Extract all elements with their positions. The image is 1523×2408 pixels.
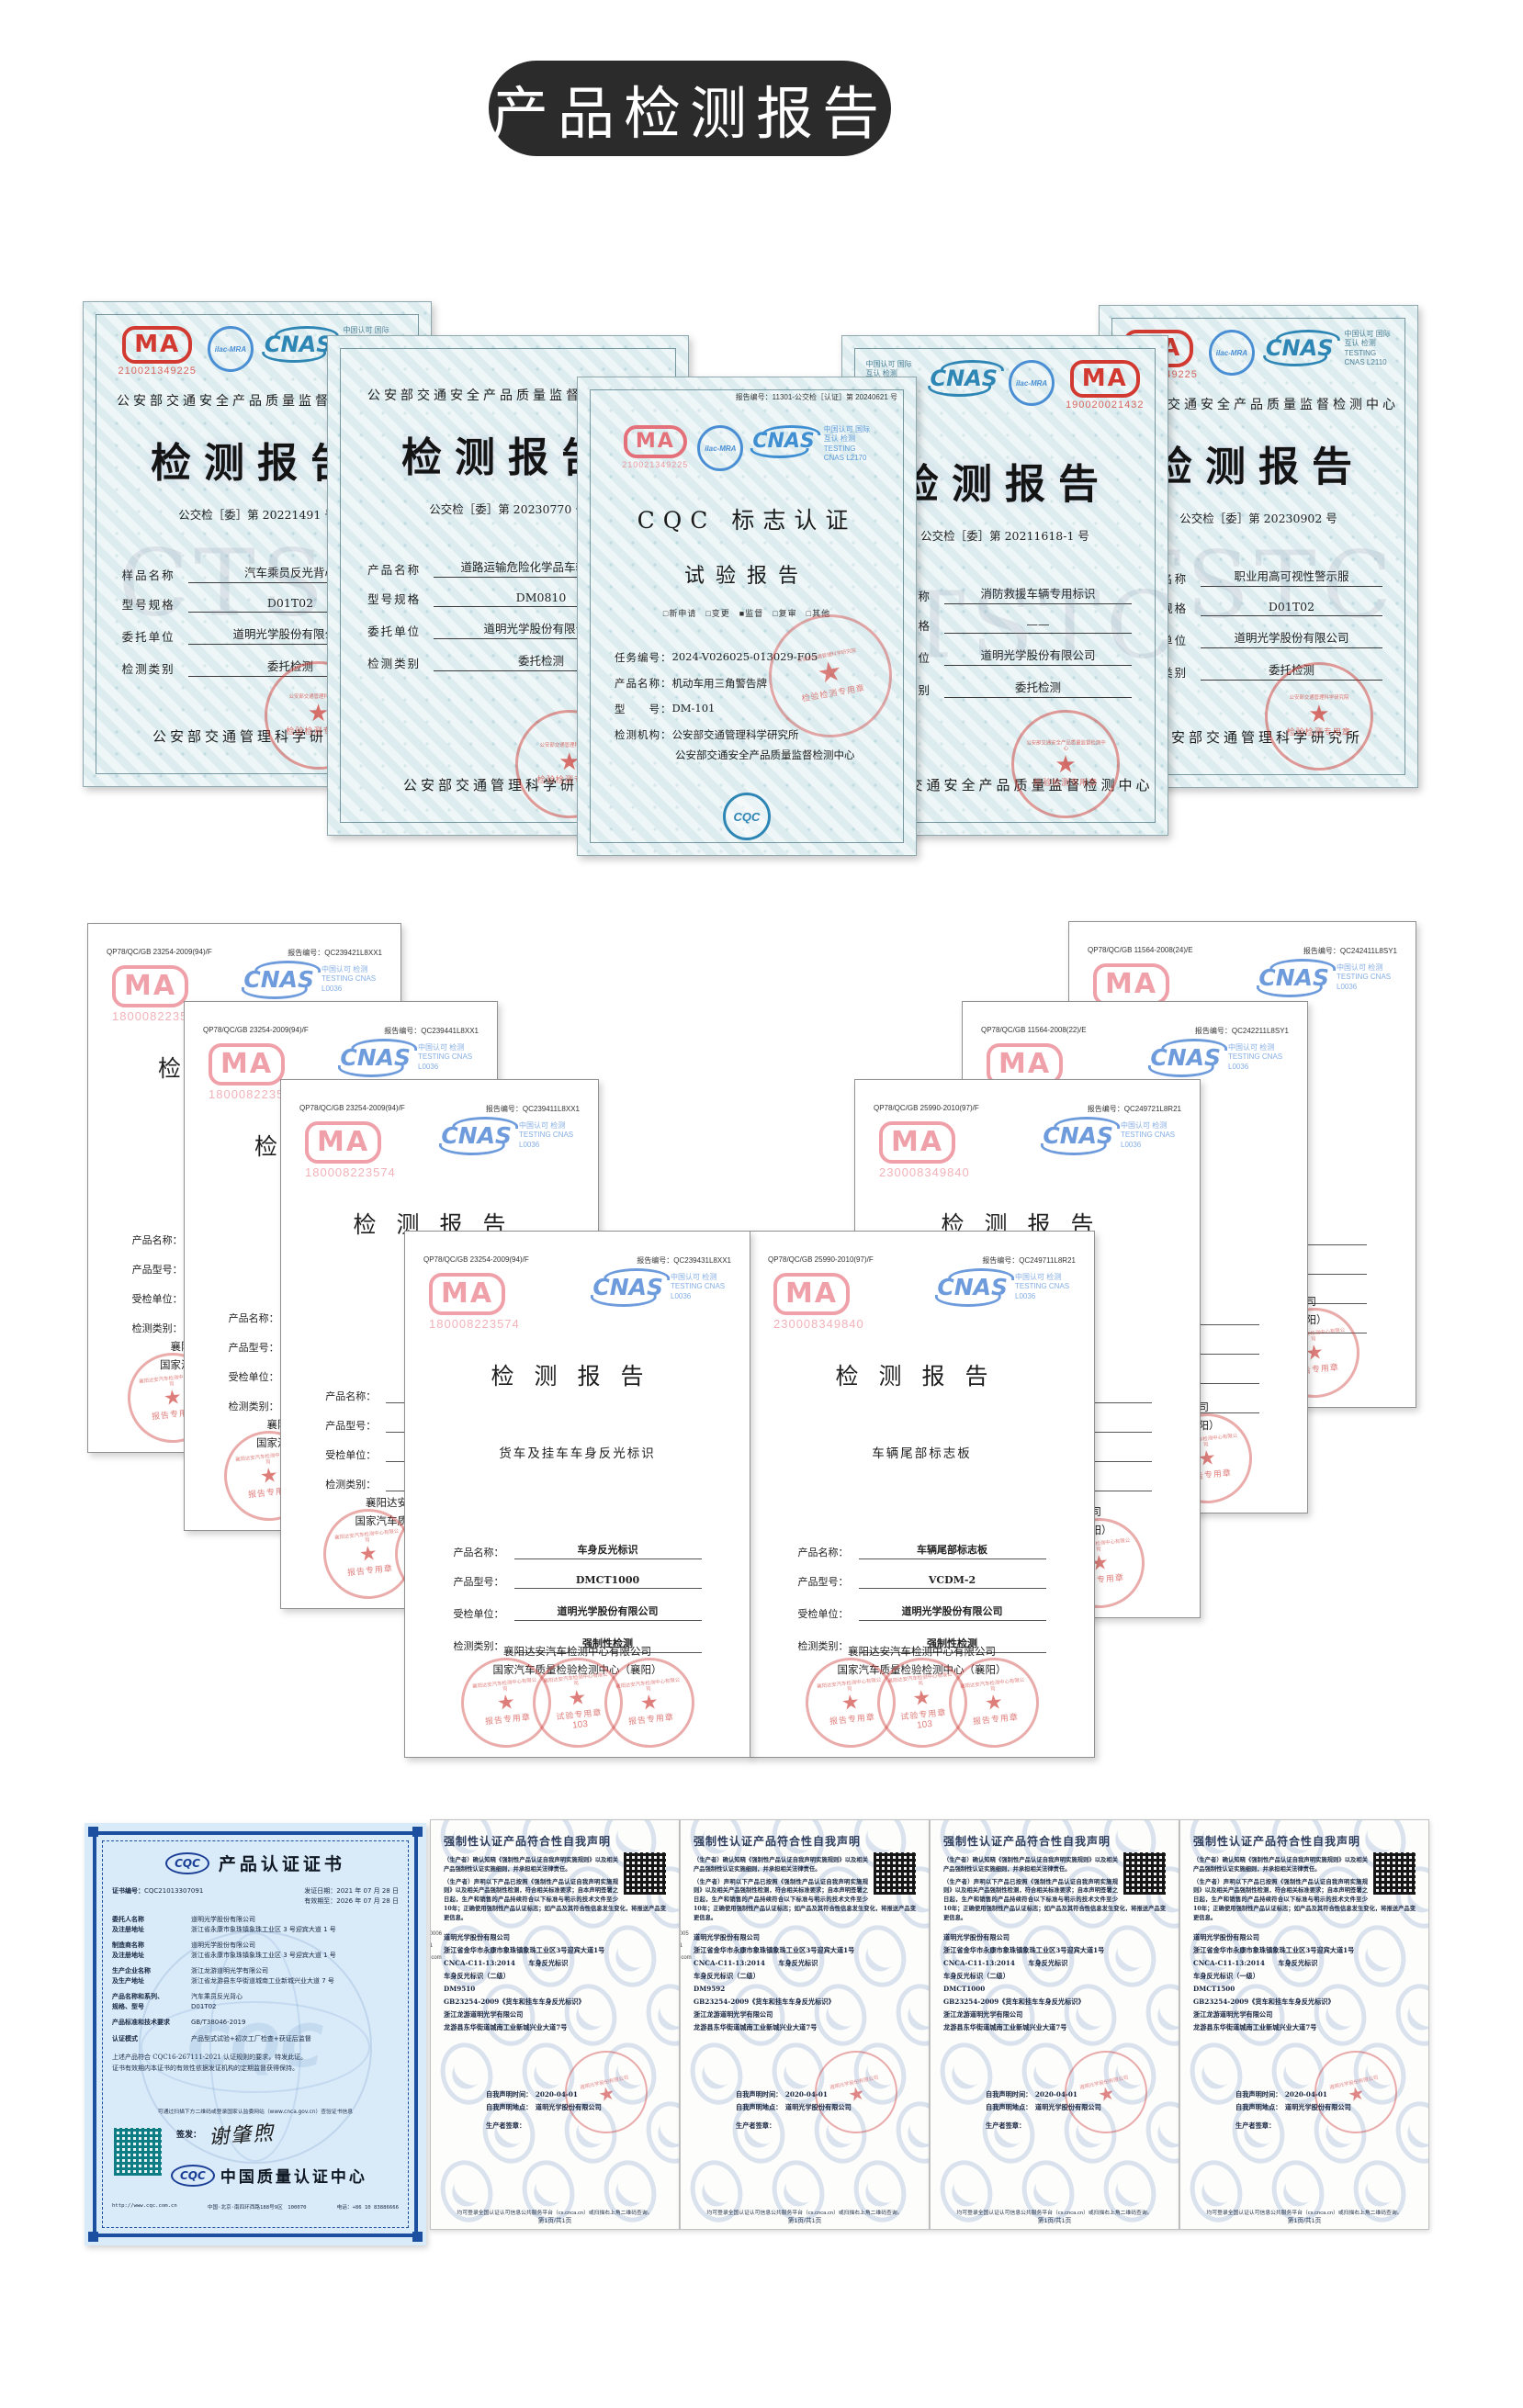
- cqc-product-certification-certificate: CQC CQC 产品认证证书 证书编号：CQC21013307091 发证日期：…: [85, 1823, 426, 2245]
- standard-line: GB23254-2009《货车和挂车车身反光标识》: [943, 1996, 1166, 2009]
- standard-line: GB23254-2009《货车和挂车车身反光标识》: [1193, 1996, 1416, 2009]
- product-name: 车身反光标识（二级）: [943, 1970, 1166, 1983]
- cma-logo: MA 210021349225: [118, 326, 197, 377]
- product-name: 车身反光标识（二级）: [444, 1970, 666, 1983]
- info-row: 公安部交通安全产品质量监督检测中心: [675, 748, 916, 762]
- document-code: QP78/QC/GB 23254-2009(94)/F: [423, 1255, 529, 1266]
- cropped-edge-text: 00005 871 63.com: [680, 1929, 692, 1965]
- self-declaration-document: 强制性认证产品符合性自我声明 （生产者）确认知晓《强制性产品认证自我声明实施规则…: [1179, 1819, 1429, 2230]
- cnas-logo-block: CNAS 中国认可 检测 TESTING CNAS L0036: [1150, 1043, 1283, 1072]
- footer-phone: 电话：+86 10 83886666: [337, 2203, 399, 2211]
- declaration-meta: 自我声明时间： 2020-04-01 自我声明地点： 道明光学股份有限公司: [486, 2088, 666, 2115]
- field-row: 产品名称： 车身反光标识: [454, 1542, 702, 1559]
- red-seal-stamp: 襄阳达安汽车检测中心有限公司 ★ 试验专用章 103: [528, 1653, 627, 1752]
- cnas-accreditation-text: 中国认可 检测 TESTING CNAS L0036: [1015, 1273, 1070, 1301]
- star-icon: ★: [911, 1687, 931, 1709]
- document-code: QP78/QC/GB 23254-2009(94)/F: [299, 1104, 405, 1114]
- certificate-logos: MA 180008223574 CNAS 中国认可 检测 TESTING CNA…: [281, 1114, 598, 1179]
- star-icon: ★: [567, 1687, 587, 1709]
- corner-decoration: [412, 2232, 423, 2242]
- report-number: 报告编号：QC249721L8R21: [1088, 1104, 1181, 1114]
- cma-logo: MA 190020021432: [1066, 360, 1144, 411]
- declaration-time: 自我声明时间： 2020-04-01: [986, 2088, 1166, 2101]
- cma-logo: MA 180008223574: [429, 1273, 520, 1331]
- qr-verification-note: 可通过扫描下方二维码或登录国家认监委网站（www.cnca.gov.cn）查验证…: [112, 2107, 399, 2115]
- field-row: 委托人名称及注册地址 道明光学股份有限公司浙江省永康市象珠镇象珠工业区 3 号迎…: [112, 1915, 399, 1934]
- certificate-header: QP78/QC/GB 25990-2010(97)/F 报告编号：QC24971…: [750, 1232, 1094, 1266]
- declaration-content: 强制性认证产品符合性自我声明 （生产者）确认知晓《强制性产品认证自我声明实施规则…: [694, 1831, 916, 2218]
- cma-logo: MA 210021349225: [622, 425, 688, 469]
- product-info-lines: 道明光学股份有限公司 浙江省金华市永康市象珠镇象珠工业区3号迎宾大道1号 CNC…: [694, 1931, 916, 2034]
- report-title: 检测报告: [750, 1358, 1094, 1391]
- report-fields: 产品名称： 车辆尾部标志板 产品型号： VCDM-2 受检单位： 道明光学股份有…: [798, 1542, 1046, 1653]
- qr-code: [1373, 1852, 1416, 1895]
- field-row: 检测类别 委托检测: [1134, 660, 1382, 681]
- red-seal-stamps: 襄阳达安汽车检测中心有限公司 ★ 报告专用章 襄阳达安汽车检测中心有限公司 ★ …: [815, 1658, 1030, 1748]
- field-row: 生产企业名称及生产地址 浙江龙游道明光学有限公司浙江省龙游县东华街道城南工业新城…: [112, 1966, 399, 1986]
- certificate-footer: http://www.cqc.com.cn 中国·北京·南四环西路188号9区 …: [112, 2203, 399, 2211]
- cnas-accreditation-text: 中国认可 检测 TESTING CNAS L0036: [1228, 1043, 1283, 1072]
- certificate-subtitle: 试验报告: [578, 559, 916, 589]
- cnas-logo-block: CNAS 中国认可 检测 TESTING CNAS L0036: [937, 1273, 1070, 1301]
- red-seal-stamp: 襄阳达安汽车检测中心有限公司 ★ 报告专用章: [944, 1653, 1044, 1752]
- red-seal-stamp: 襄阳达安汽车检测中心有限公司 ★ 报告专用章: [600, 1653, 699, 1752]
- field-row: 产品名称： 车辆尾部标志板: [798, 1542, 1046, 1559]
- cnas-logo-block: CNAS 中国认可 检测 TESTING CNAS L0036: [340, 1043, 473, 1072]
- cnas-logo: CNAS: [265, 333, 333, 355]
- cnas-logo: CNAS: [340, 1046, 411, 1069]
- certificate-logos: MA 210021349225 ilac-MRA CNAS 中国认可 国际互认 …: [578, 425, 916, 471]
- document-code: QP78/QC/GB 25990-2010(97)/F: [874, 1104, 979, 1114]
- declaration-time: 自我声明时间： 2020-04-01: [486, 2088, 666, 2101]
- self-declaration-document: 00005 871 63.com 强制性认证产品符合性自我声明 （生产者）确认知…: [680, 1819, 930, 2230]
- red-seal-stamp: 襄阳达安汽车检测中心有限公司 ★ 报告专用章: [801, 1653, 900, 1752]
- cnca-rule-line: CNCA-C11-13:2014 车身反光标识: [1193, 1957, 1416, 1970]
- certificate-content: CQC 产品认证证书 证书编号：CQC21013307091 发证日期：2021…: [112, 1845, 399, 2223]
- declaration-meta: 自我声明时间： 2020-04-01 自我声明地点： 道明光学股份有限公司: [736, 2088, 916, 2115]
- cnas-accreditation-text: 中国认可 国际互认 检测 TESTING CNAS L2170: [824, 425, 872, 464]
- cqc-trial-report-certificate: 报告编号：11301-公交检［认证］第 20240621 号 MA 210021…: [577, 377, 917, 856]
- document-code: QP78/QC/GB 11564-2008(22)/E: [981, 1026, 1087, 1036]
- cma-logo: MA 230008349840: [879, 1121, 970, 1179]
- declaration-place: 自我声明地点： 道明光学股份有限公司: [736, 2101, 916, 2114]
- cnas-logo: CNAS: [1258, 966, 1329, 989]
- cma-number: 180008223574: [305, 1165, 396, 1179]
- certificate-header: CQC 产品认证证书: [112, 1851, 399, 1875]
- certificate-header: QP78/QC/GB 23254-2009(94)/F 报告编号：QC23942…: [88, 924, 400, 958]
- cnas-logo: CNAS: [1150, 1046, 1221, 1069]
- red-seal-stamp: 襄阳达安汽车检测中心有限公司 ★ 报告专用章: [319, 1504, 418, 1603]
- report-title: 检测报告: [405, 1358, 750, 1391]
- qr-code: [1123, 1852, 1166, 1895]
- declaration-place: 自我声明地点： 道明光学股份有限公司: [1235, 2101, 1416, 2114]
- section-title: 产品检测报告: [491, 67, 888, 150]
- cma-number: 210021349225: [622, 460, 688, 469]
- report-number: 报告编号：11301-公交检［认证］第 20240621 号: [736, 392, 897, 402]
- corner-decoration: [88, 2232, 98, 2242]
- cma-logo: MA 230008349840: [773, 1273, 864, 1331]
- info-row: 检测机构： 公安部交通管理科学研究所: [615, 727, 916, 742]
- producer-signature-label: 生产者签章：: [986, 2121, 1166, 2131]
- product-model: DM9592: [694, 1983, 916, 1996]
- self-declaration-document: 强制性认证产品符合性自我声明 （生产者）确认知晓《强制性产品认证自我声明实施规则…: [930, 1819, 1179, 2230]
- lab-test-report-certificate: QP78/QC/GB 25990-2010(97)/F 报告编号：QC24971…: [749, 1231, 1095, 1758]
- cnas-logo: CNAS: [1043, 1124, 1113, 1147]
- star-icon: ★: [496, 1692, 516, 1714]
- cqc-logo: CQC: [165, 1852, 209, 1874]
- field-row: 受检单位： 道明光学股份有限公司: [798, 1603, 1046, 1621]
- certificate-title: 产品认证证书: [219, 1851, 345, 1875]
- qr-code: [874, 1852, 916, 1895]
- info-row: 产品名称： 机动车用三角警告牌: [615, 676, 916, 691]
- ilac-mra-logo: ilac-MRA: [697, 425, 743, 471]
- certificate-logos: MA 230008349840 CNAS 中国认可 检测 TESTING CNA…: [855, 1114, 1200, 1179]
- product-name: 车身反光标识（一级）: [1193, 1970, 1416, 1983]
- factory-address: 龙游县东华街道城南工业新城兴业大道7号: [444, 2021, 666, 2034]
- cnas-logo: CNAS: [1266, 337, 1334, 359]
- field-row: 认证模式 产品型式试验+初次工厂检查+获证后监督: [112, 2034, 399, 2044]
- red-seal-stamps: 襄阳达安汽车检测中心有限公司 ★ 报告专用章 襄阳达安汽车检测中心有限公司 ★ …: [470, 1658, 685, 1748]
- report-number: 报告编号：QC239431L8XX1: [637, 1255, 731, 1266]
- cnca-rule-line: CNCA-C11-13:2014 车身反光标识: [943, 1957, 1166, 1970]
- cnas-logo: CNAS: [931, 367, 998, 389]
- product-info-lines: 道明光学股份有限公司 浙江省金华市永康市象珠镇象珠工业区3号迎宾大道1号 CNC…: [943, 1931, 1166, 2034]
- qr-code: [624, 1852, 666, 1895]
- cnas-logo: CNAS: [752, 432, 814, 452]
- declaration-meta: 自我声明时间： 2020-04-01 自我声明地点： 道明光学股份有限公司: [1235, 2088, 1416, 2115]
- report-info-rows: 任务编号： 2024-V026025-013029-F05 产品名称： 机动车用…: [615, 650, 916, 762]
- cropped-edge-text: 000006 871 63.com: [430, 1929, 442, 1965]
- standard-line: GB23254-2009《货车和挂车车身反光标识》: [694, 1996, 916, 2009]
- producer-address: 浙江省金华市永康市象珠镇象珠工业区3号迎宾大道1号: [1193, 1944, 1416, 1957]
- product-info-lines: 道明光学股份有限公司 浙江省金华市永康市象珠镇象珠工业区3号迎宾大道1号 CNC…: [1193, 1931, 1416, 2034]
- producer-address: 浙江省金华市永康市象珠镇象珠工业区3号迎宾大道1号: [943, 1944, 1166, 1957]
- info-row: 型 号： DM-101: [615, 702, 916, 716]
- declaration-content: 强制性认证产品符合性自我声明 （生产者）确认知晓《强制性产品认证自我声明实施规则…: [943, 1831, 1166, 2218]
- producer-address: 浙江省金华市永康市象珠镇象珠工业区3号迎宾大道1号: [694, 1944, 916, 1957]
- cqc-logo: CQC: [171, 2165, 215, 2187]
- certificate-dates: 发证日期：2021 年 07 月 28 日 有效期至：2026 年 07 月 2…: [304, 1886, 399, 1906]
- field-row: 产品标准和技术要求 GB/T38046-2019: [112, 2018, 399, 2028]
- report-fields: 样品名称 职业用高可视性警示服 型号规格 D01T02 委托单位 道明光学股份有…: [1134, 567, 1382, 681]
- red-seal-stamp: 襄阳达安汽车检测中心有限公司 ★ 报告专用章: [457, 1653, 556, 1752]
- field-row: 制造商名称及注册地址 道明光学股份有限公司浙江省永康市象珠镇象珠工业区 3 号迎…: [112, 1941, 399, 1960]
- certificate-header: QP78/QC/GB 23254-2009(94)/F 报告编号：QC23944…: [185, 1002, 497, 1036]
- cma-number: 180008223574: [429, 1317, 520, 1331]
- cnas-accreditation-text: 中国认可 检测 TESTING CNAS L0036: [1337, 963, 1392, 992]
- factory-address: 龙游县东华街道城南工业新城兴业大道7号: [943, 2021, 1166, 2034]
- producer-signature-label: 生产者签章：: [736, 2121, 916, 2131]
- standard-line: GB23254-2009《货车和挂车车身反光标识》: [444, 1996, 666, 2009]
- qr-code: [114, 2128, 162, 2176]
- product-model: DMCT1000: [943, 1983, 1166, 1996]
- declaration-meta: 自我声明时间： 2020-04-01 自我声明地点： 道明光学股份有限公司: [986, 2088, 1166, 2115]
- cnas-logo-block: CNAS 中国认可 检测 TESTING CNAS L0036: [592, 1273, 726, 1301]
- product-model: DM9510: [444, 1983, 666, 1996]
- producer-name: 道明光学股份有限公司: [943, 1931, 1166, 1944]
- cnas-logo: CNAS: [937, 1276, 1008, 1299]
- declaration-content: 强制性认证产品符合性自我声明 （生产者）确认知晓《强制性产品认证自我声明实施规则…: [444, 1831, 666, 2218]
- report-number: 报告编号：QC249711L8R21: [982, 1255, 1076, 1266]
- section-title-banner: 产品检测报告: [489, 61, 891, 156]
- corner-decoration: [88, 1827, 98, 1837]
- report-subtitle: 货车及挂车车身反光标识: [405, 1443, 750, 1461]
- field-row: 样品名称 职业用高可视性警示服: [1134, 567, 1382, 587]
- ilac-mra-logo: ilac-MRA: [208, 326, 254, 372]
- declaration-time: 自我声明时间： 2020-04-01: [1235, 2088, 1416, 2101]
- info-row: 任务编号： 2024-V026025-013029-F05: [615, 650, 916, 665]
- cnas-accreditation-text: 中国认可 检测 TESTING CNAS L0036: [519, 1121, 574, 1150]
- producer-signature-label: 生产者签章：: [1235, 2121, 1416, 2131]
- cnas-logo: CNAS: [441, 1124, 512, 1147]
- signature-row: 签发： 谢肇煦: [176, 2119, 275, 2148]
- footer-url: http://www.cqc.com.cn: [112, 2203, 177, 2211]
- product-test-report-page: 产品检测报告 MA 210021349225 ilac-MRA CNAS 中国认…: [0, 0, 1523, 2408]
- declaration-place: 自我声明地点： 道明光学股份有限公司: [986, 2101, 1166, 2114]
- product-name: 车身反光标识（二级）: [694, 1970, 916, 1983]
- cnas-logo-block: CNAS 中国认可 检测 TESTING CNAS L0036: [441, 1121, 574, 1150]
- cnas-logo-block: CNAS 中国认可 检测 TESTING CNAS L0036: [1258, 963, 1392, 992]
- field-row: 型号规格 D01T02: [1134, 599, 1382, 616]
- star-icon: ★: [840, 1692, 861, 1714]
- declaration-time: 自我声明时间： 2020-04-01: [736, 2088, 916, 2101]
- cnas-logo: CNAS: [243, 968, 314, 991]
- cnas-accreditation-text: 中国认可 国际互认 检测 TESTING CNAS L2110: [1344, 330, 1397, 368]
- declaration-title: 强制性认证产品符合性自我声明: [1193, 1833, 1416, 1849]
- cnas-logo: CNAS: [592, 1276, 663, 1299]
- certificate-header: QP78/QC/GB 11564-2008(22)/E 报告编号：QC24221…: [963, 1002, 1307, 1036]
- star-icon: ★: [1055, 752, 1076, 776]
- producer-name: 道明光学股份有限公司: [694, 1931, 916, 1944]
- report-type-checkboxes: □新申请 □变更 ■监督 □复审 □其他: [578, 607, 916, 619]
- field-row: 委托单位 道明光学股份有限公司: [1134, 628, 1382, 648]
- star-icon: ★: [984, 1692, 1004, 1714]
- ilac-mra-logo: ilac-MRA: [1009, 360, 1055, 406]
- field-row: 受检单位： 道明光学股份有限公司: [454, 1603, 702, 1621]
- star-icon: ★: [163, 1387, 183, 1409]
- producer-name: 道明光学股份有限公司: [1193, 1931, 1416, 1944]
- certificate-header: QP78/QC/GB 11564-2008(24)/E 报告编号：QC24241…: [1069, 922, 1416, 956]
- issuing-org-row: CQC 中国质量认证中心: [171, 2164, 367, 2187]
- certificate-header: QP78/QC/GB 25990-2010(97)/F 报告编号：QC24972…: [855, 1080, 1200, 1114]
- red-seal-stamp: 襄阳达安汽车检测中心有限公司 ★ 试验专用章 103: [873, 1653, 972, 1752]
- certificate-header: QP78/QC/GB 23254-2009(94)/F 报告编号：QC23943…: [405, 1232, 750, 1266]
- lab-test-report-certificate: QP78/QC/GB 23254-2009(94)/F 报告编号：QC23943…: [404, 1231, 750, 1758]
- producer-address: 浙江省金华市永康市象珠镇象珠工业区3号迎宾大道1号: [444, 1944, 666, 1957]
- certificate-fields: 委托人名称及注册地址 道明光学股份有限公司浙江省永康市象珠镇象珠工业区 3 号迎…: [112, 1915, 399, 2043]
- factory-name: 浙江龙游道明光学有限公司: [694, 2009, 916, 2021]
- report-number: 报告编号：QC239441L8XX1: [384, 1026, 479, 1036]
- document-code: QP78/QC/GB 23254-2009(94)/F: [203, 1026, 309, 1036]
- cnas-accreditation-text: 中国认可 检测 TESTING CNAS L0036: [322, 965, 377, 994]
- field-row: 产品型号： VCDM-2: [798, 1574, 1046, 1589]
- report-fields: 产品名称： 车身反光标识 产品型号： DMCT1000 受检单位： 道明光学股份…: [454, 1542, 702, 1653]
- cma-number: 230008349840: [773, 1317, 864, 1331]
- document-code: QP78/QC/GB 23254-2009(94)/F: [107, 948, 212, 958]
- self-declaration-document: 000006 871 63.com 强制性认证产品符合性自我声明 （生产者）确认…: [430, 1819, 680, 2230]
- cnas-logo-block: CNAS 中国认可 检测 TESTING CNAS L0036: [1043, 1121, 1176, 1150]
- star-icon: ★: [639, 1692, 660, 1714]
- declaration-place: 自我声明地点： 道明光学股份有限公司: [486, 2101, 666, 2114]
- certificate-statement: 上述产品符合 CQC16-267111-2021 认证规则的要求，特发此证。 证…: [112, 2053, 399, 2075]
- signature: 谢肇煦: [208, 2117, 276, 2151]
- declaration-title: 强制性认证产品符合性自我声明: [943, 1833, 1166, 1849]
- certificate-number: CQC21013307091: [144, 1887, 203, 1895]
- star-icon: ★: [308, 701, 329, 725]
- certificate-number-row: 证书编号：CQC21013307091 发证日期：2021 年 07 月 28 …: [112, 1886, 399, 1906]
- cnas-accreditation-text: 中国认可 检测 TESTING CNAS L0036: [418, 1043, 473, 1072]
- field-row: 产品名称和系列、规格、型号 汽车乘员反光背心D01T02: [112, 1992, 399, 2011]
- certificate-header: QP78/QC/GB 23254-2009(94)/F 报告编号：QC23941…: [281, 1080, 598, 1114]
- cma-logo: MA 180008223574: [305, 1121, 396, 1179]
- cnas-accreditation-text: 中国认可 检测 TESTING CNAS L0036: [671, 1273, 726, 1301]
- report-number: 报告编号：QC239411L8XX1: [486, 1104, 580, 1114]
- certificate-title: CQC 标志认证: [578, 502, 916, 535]
- red-seal-stamp: 公安部交通安全产品质量监督检测中心 ★ 检验检测专用章: [1011, 710, 1120, 818]
- factory-address: 龙游县东华街道城南工业新城兴业大道7号: [1193, 2021, 1416, 2034]
- factory-name: 浙江龙游道明光学有限公司: [1193, 2009, 1416, 2021]
- issuing-org-name: 中国质量认证中心: [220, 2164, 367, 2187]
- document-code: QP78/QC/GB 25990-2010(97)/F: [768, 1255, 874, 1266]
- declaration-title: 强制性认证产品符合性自我声明: [694, 1833, 916, 1849]
- star-icon: ★: [1308, 702, 1329, 726]
- certificate-logos: MA 180008223574 CNAS 中国认可 检测 TESTING CNA…: [405, 1266, 750, 1331]
- declaration-content: 强制性认证产品符合性自我声明 （生产者）确认知晓《强制性产品认证自我声明实施规则…: [1193, 1831, 1416, 2218]
- factory-name: 浙江龙游道明光学有限公司: [943, 2009, 1166, 2021]
- factory-name: 浙江龙游道明光学有限公司: [444, 2009, 666, 2021]
- footer-address: 中国·北京·南四环西路188号9区 100070: [208, 2203, 307, 2211]
- cnas-logo-block: CNAS 中国认可 检测 TESTING CNAS L0036: [243, 965, 377, 994]
- corner-decoration: [412, 1827, 423, 1837]
- producer-name: 道明光学股份有限公司: [444, 1931, 666, 1944]
- cnas-accreditation-text: 中国认可 检测 TESTING CNAS L0036: [1121, 1121, 1176, 1150]
- product-info-lines: 道明光学股份有限公司 浙江省金华市永康市象珠镇象珠工业区3号迎宾大道1号 CNC…: [444, 1931, 666, 2034]
- certificate-logos: MA 230008349840 CNAS 中国认可 检测 TESTING CNA…: [750, 1266, 1094, 1331]
- factory-address: 龙游县东华街道城南工业新城兴业大道7号: [694, 2021, 916, 2034]
- cma-number: 210021349225: [118, 366, 197, 377]
- report-number: 报告编号：QC239421L8XX1: [288, 948, 382, 958]
- declaration-title: 强制性认证产品符合性自我声明: [444, 1833, 666, 1849]
- producer-signature-label: 生产者签章：: [486, 2121, 666, 2131]
- cnca-rule-line: CNCA-C11-13:2014 车身反光标识: [694, 1957, 916, 1970]
- document-code: QP78/QC/GB 11564-2008(24)/E: [1088, 946, 1193, 956]
- product-model: DMCT1500: [1193, 1983, 1416, 1996]
- star-icon: ★: [358, 1543, 378, 1565]
- cnca-rule-line: CNCA-C11-13:2014 车身反光标识: [444, 1957, 666, 1970]
- star-icon: ★: [259, 1465, 279, 1487]
- cma-number: 190020021432: [1066, 399, 1144, 411]
- cqc-logo: CQC: [723, 793, 771, 840]
- field-row: 产品型号： DMCT1000: [454, 1574, 702, 1589]
- cma-number: 230008349840: [879, 1165, 970, 1179]
- report-number: 报告编号：QC242211L8SY1: [1195, 1026, 1289, 1036]
- ilac-mra-logo: ilac-MRA: [1209, 330, 1255, 376]
- report-number: 报告编号：QC242411L8SY1: [1303, 946, 1397, 956]
- report-subtitle: 车辆尾部标志板: [750, 1443, 1094, 1461]
